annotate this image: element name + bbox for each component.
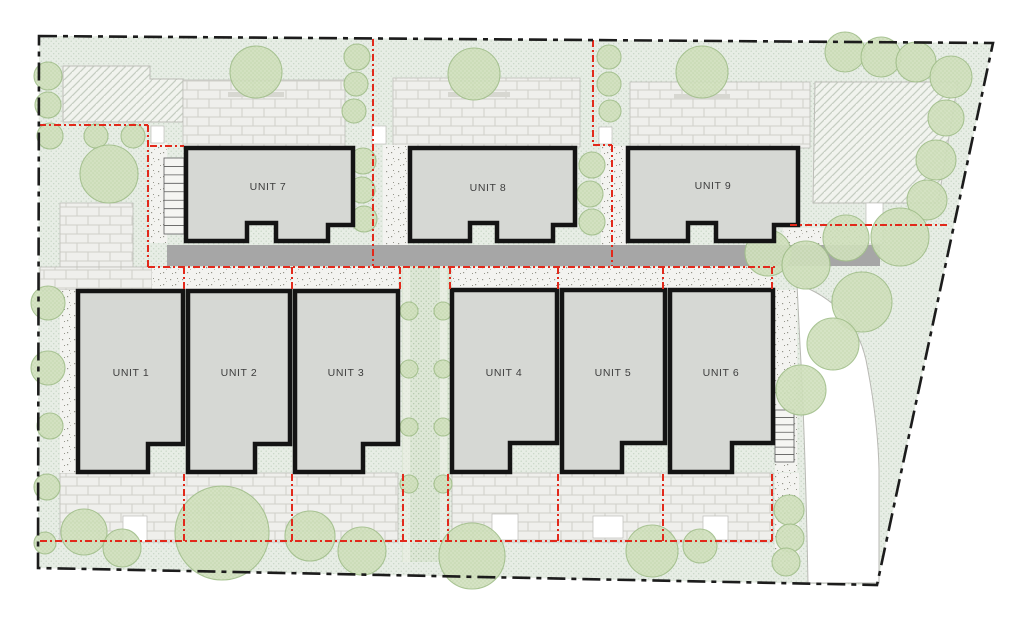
tree bbox=[434, 302, 452, 320]
building-footprint bbox=[295, 291, 398, 472]
tree bbox=[80, 145, 138, 203]
tree bbox=[772, 548, 800, 576]
brick-paving bbox=[60, 203, 133, 267]
unit-label: UNIT 3 bbox=[328, 367, 365, 379]
tree bbox=[676, 46, 728, 98]
tree bbox=[400, 360, 418, 378]
stairs bbox=[775, 410, 794, 462]
brick-paving bbox=[630, 82, 810, 148]
tree bbox=[400, 302, 418, 320]
concrete-strip bbox=[452, 267, 772, 290]
white-pad bbox=[593, 516, 623, 538]
unit-label: UNIT 2 bbox=[221, 367, 258, 379]
tree bbox=[579, 209, 605, 235]
tree bbox=[31, 351, 65, 385]
tree bbox=[776, 365, 826, 415]
tree bbox=[448, 48, 500, 100]
unit-label: UNIT 7 bbox=[250, 181, 287, 193]
white-pad bbox=[599, 127, 612, 144]
building-footprint bbox=[78, 291, 183, 472]
unit-label: UNIT 9 bbox=[695, 180, 732, 192]
unit-label: UNIT 8 bbox=[470, 182, 507, 194]
tree bbox=[230, 46, 282, 98]
stairs-outline bbox=[164, 158, 184, 234]
tree bbox=[683, 529, 717, 563]
unit-label: UNIT 5 bbox=[595, 367, 632, 379]
building-unit-1: UNIT 1 bbox=[78, 291, 183, 472]
tree bbox=[434, 475, 452, 493]
tree bbox=[31, 286, 65, 320]
building-unit-4: UNIT 4 bbox=[452, 290, 557, 472]
tree bbox=[579, 152, 605, 178]
building-unit-2: UNIT 2 bbox=[188, 291, 290, 472]
building-footprint bbox=[670, 290, 773, 472]
tree bbox=[37, 413, 63, 439]
plan-canvas: UNIT 1UNIT 2UNIT 3UNIT 4UNIT 5UNIT 6UNIT… bbox=[0, 0, 1022, 621]
building-footprint bbox=[452, 290, 557, 472]
white-pad bbox=[372, 126, 386, 144]
tree bbox=[782, 241, 830, 289]
unit-label: UNIT 1 bbox=[113, 367, 150, 379]
tree bbox=[626, 525, 678, 577]
brick-paving bbox=[40, 267, 152, 290]
tree bbox=[774, 495, 804, 525]
tree bbox=[61, 509, 107, 555]
building-unit-6: UNIT 6 bbox=[670, 290, 773, 472]
tree bbox=[121, 124, 145, 148]
building-footprint bbox=[562, 290, 665, 472]
tree bbox=[338, 527, 386, 575]
tree bbox=[344, 72, 368, 96]
tree bbox=[434, 360, 452, 378]
tree bbox=[916, 140, 956, 180]
tree bbox=[434, 418, 452, 436]
unit-label: UNIT 4 bbox=[486, 367, 523, 379]
tree bbox=[930, 56, 972, 98]
building-unit-5: UNIT 5 bbox=[562, 290, 665, 472]
tree bbox=[175, 486, 269, 580]
tree bbox=[344, 44, 370, 70]
tree bbox=[599, 100, 621, 122]
tree bbox=[577, 181, 603, 207]
tree bbox=[776, 524, 804, 552]
tree bbox=[439, 523, 505, 589]
unit-label: UNIT 6 bbox=[703, 367, 740, 379]
tree bbox=[37, 123, 63, 149]
concrete-strip bbox=[152, 267, 398, 290]
white-pad bbox=[151, 126, 164, 143]
tree bbox=[103, 529, 141, 567]
tree bbox=[871, 208, 929, 266]
building-unit-3: UNIT 3 bbox=[295, 291, 398, 472]
building-footprint bbox=[188, 291, 290, 472]
tree bbox=[84, 124, 108, 148]
site-plan: UNIT 1UNIT 2UNIT 3UNIT 4UNIT 5UNIT 6UNIT… bbox=[0, 0, 1022, 621]
tree bbox=[597, 45, 621, 69]
tree bbox=[928, 100, 964, 136]
tree bbox=[823, 215, 869, 261]
tree bbox=[825, 32, 865, 72]
tree bbox=[597, 72, 621, 96]
stairs bbox=[164, 158, 184, 234]
tree bbox=[342, 99, 366, 123]
tree bbox=[400, 418, 418, 436]
concrete-strip bbox=[60, 290, 78, 473]
tree bbox=[807, 318, 859, 370]
